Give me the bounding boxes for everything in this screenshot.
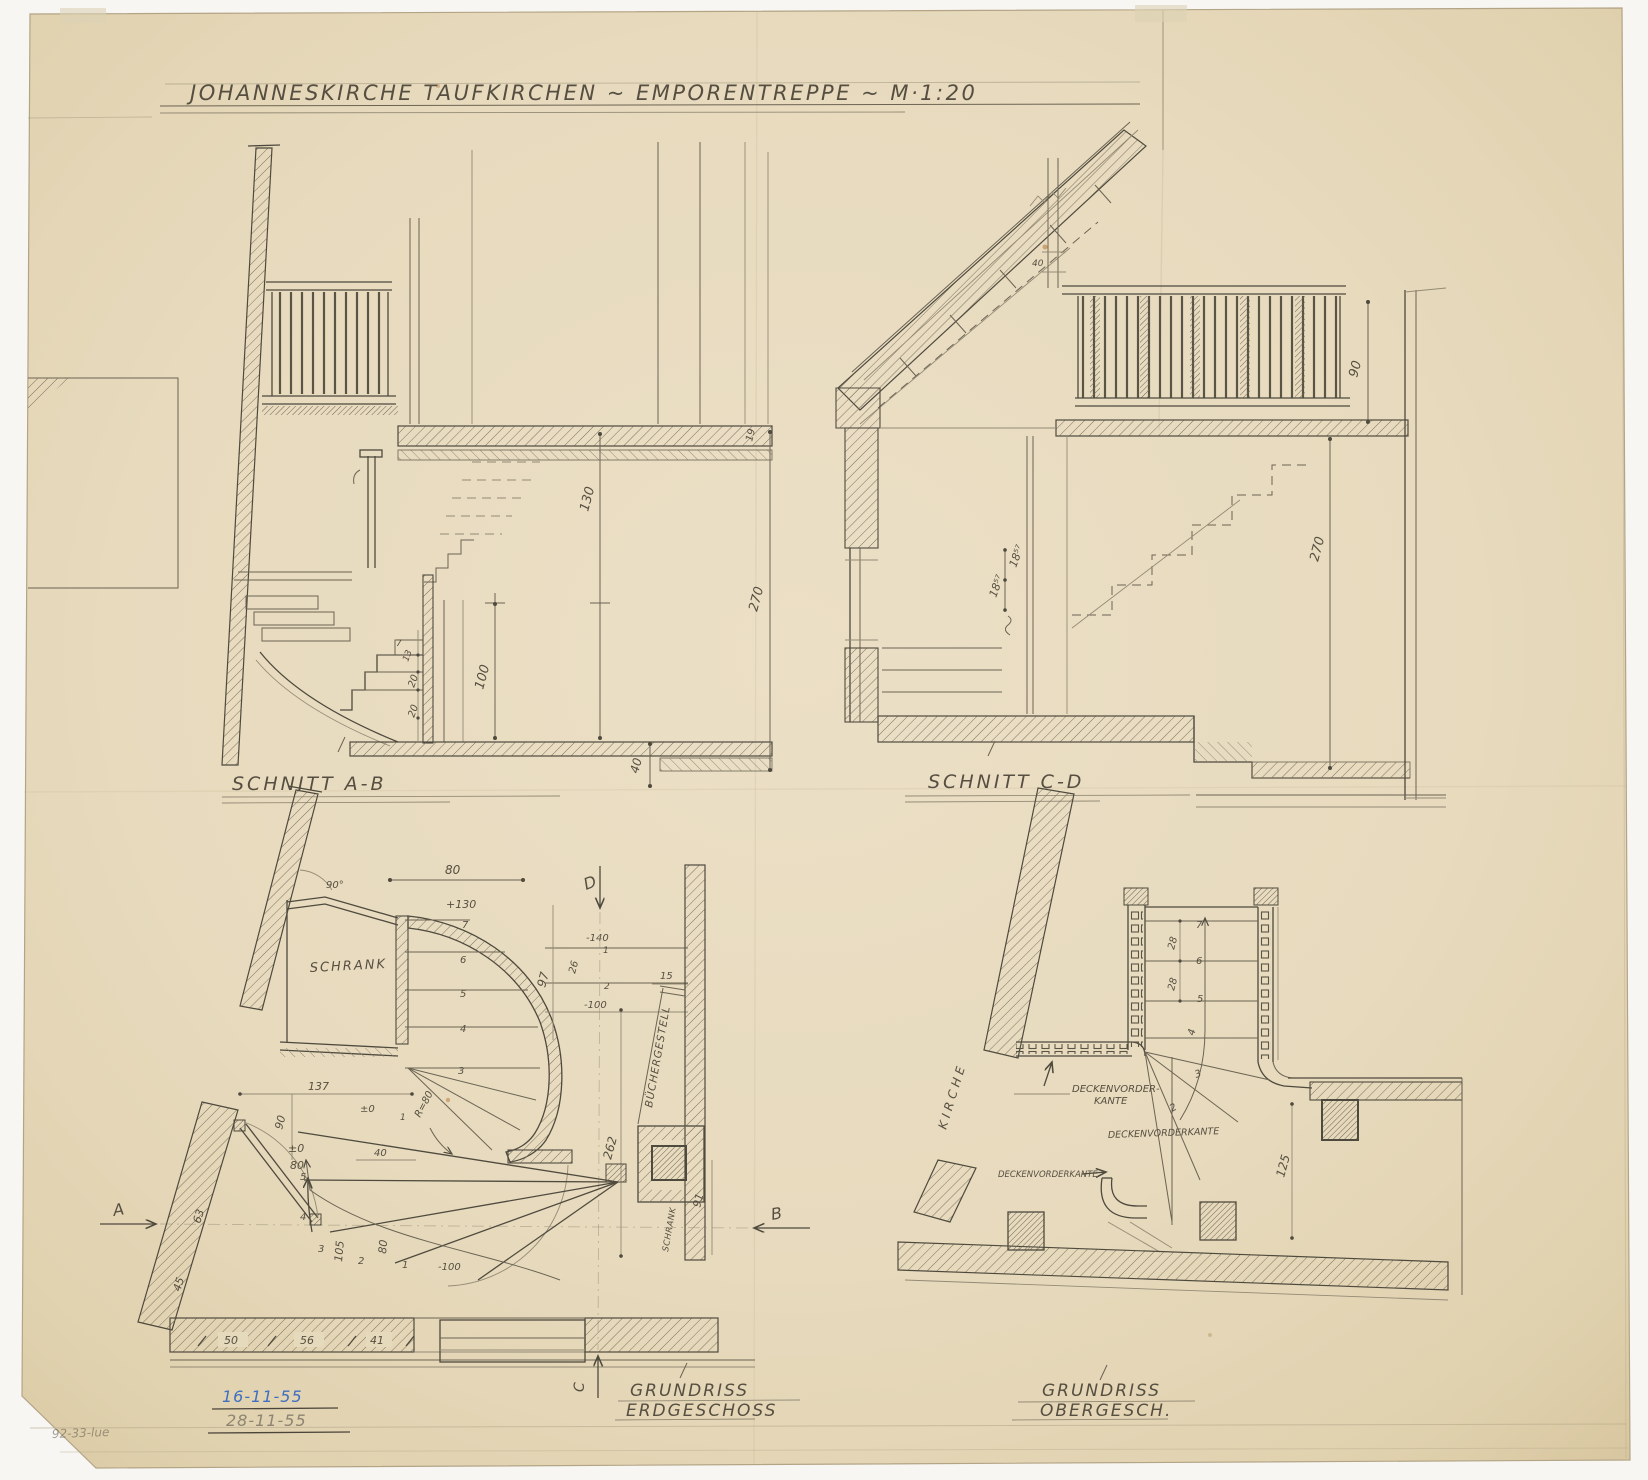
level-minus100-a: -100 — [584, 1000, 607, 1011]
gallery-edge-balusters — [1016, 1044, 1132, 1054]
wall-pier — [1322, 1100, 1358, 1140]
step-5: 5 — [300, 1172, 306, 1183]
stain-speck — [1043, 245, 1048, 250]
dim-50: 50 — [224, 1334, 238, 1347]
level-minus140: -140 — [586, 933, 609, 944]
step-2: 2 — [358, 1256, 364, 1267]
step-c3: 3 — [458, 1066, 464, 1077]
stair-wall-section — [423, 575, 433, 743]
chimney-flue — [652, 1146, 686, 1180]
step-u1: 1 — [603, 946, 609, 956]
angle-90: 90° — [326, 880, 344, 891]
gallery-slab — [1056, 420, 1408, 436]
dim-137: 137 — [308, 1080, 329, 1093]
view-label-og-1: GRUNDRISS — [1042, 1381, 1161, 1401]
pillar — [1200, 1202, 1236, 1240]
step-c4: 4 — [460, 1024, 466, 1035]
step-1: 1 — [402, 1260, 408, 1271]
deckenvorderkante-label-3: DECKENVORDERKANTE — [998, 1170, 1098, 1180]
step-4: 4 — [300, 1212, 306, 1223]
scanned-drawing-page: JOHANNESKIRCHE TAUFKIRCHEN ~ EMPORENTREP… — [0, 0, 1648, 1480]
dim-80-b: 80 — [290, 1159, 304, 1172]
ceiling-band — [398, 426, 772, 446]
tape-mark — [1135, 5, 1187, 22]
right-wall-band — [1310, 1082, 1462, 1100]
date-stamp-blue: 16-11-55 — [222, 1387, 303, 1406]
step-x1: 1 — [400, 1113, 406, 1123]
page-title: JOHANNESKIRCHE TAUFKIRCHEN ~ EMPORENTREP… — [186, 81, 977, 105]
pillar — [1008, 1212, 1044, 1250]
dim-56: 56 — [300, 1334, 314, 1347]
tape-mark — [60, 8, 106, 23]
corner-inventory-mark: 92-33-lue — [52, 1425, 110, 1441]
stair-balustrade-left — [1130, 907, 1143, 1047]
step-c6: 6 — [460, 955, 466, 966]
date-stamp-pencil: 28-11-55 — [226, 1411, 307, 1430]
bottom-wall-dims: 50 56 41 — [198, 1332, 414, 1347]
dim-40-gf: 40 — [374, 1148, 387, 1159]
og-step-7: 7 — [1196, 920, 1203, 931]
dim-80-top: 80 — [445, 863, 461, 877]
deckenvorderkante-label-1a: DECKENVORDER- — [1072, 1084, 1160, 1095]
og-step-5: 5 — [1197, 994, 1203, 1005]
dim-105: 105 — [332, 1240, 347, 1262]
deckenvorderkante-label-1b: KANTE — [1094, 1096, 1128, 1107]
og-step-6: 6 — [1196, 956, 1202, 967]
view-label-og-2: OBERGESCH. — [1040, 1401, 1172, 1421]
view-label-gf-1: GRUNDRISS — [630, 1381, 749, 1401]
step-c5: 5 — [460, 989, 466, 1000]
level-plus130: +130 — [446, 898, 476, 911]
view-label-schnitt-ab: SCHNITT A-B — [232, 773, 387, 795]
view-label-gf-2: ERDGESCHOSS — [626, 1401, 777, 1421]
floor-band — [350, 742, 772, 756]
dim-41: 41 — [370, 1334, 384, 1347]
stair-balustrade-right — [1260, 909, 1271, 1059]
step-3: 3 — [318, 1244, 324, 1255]
drawing-canvas: JOHANNESKIRCHE TAUFKIRCHEN ~ EMPORENTREP… — [0, 0, 1648, 1480]
dim-80-c: 80 — [376, 1239, 390, 1254]
step-u2: 2 — [604, 982, 610, 992]
view-label-schnitt-cd: SCHNITT C-D — [928, 771, 1084, 793]
level-0-a: ±0 — [360, 1104, 375, 1115]
level-minus100-b: -100 — [438, 1262, 461, 1273]
dim-15: 15 — [660, 971, 673, 982]
dim-40-top: 40 — [1032, 259, 1044, 269]
bottom-wall-right — [585, 1318, 718, 1352]
balustrade-slats — [272, 292, 388, 394]
step-c7: 7 — [462, 920, 469, 931]
dim-7: 7 — [396, 639, 402, 649]
level-0-b: ±0 — [288, 1142, 304, 1155]
section-letter-c: C — [572, 1382, 588, 1392]
